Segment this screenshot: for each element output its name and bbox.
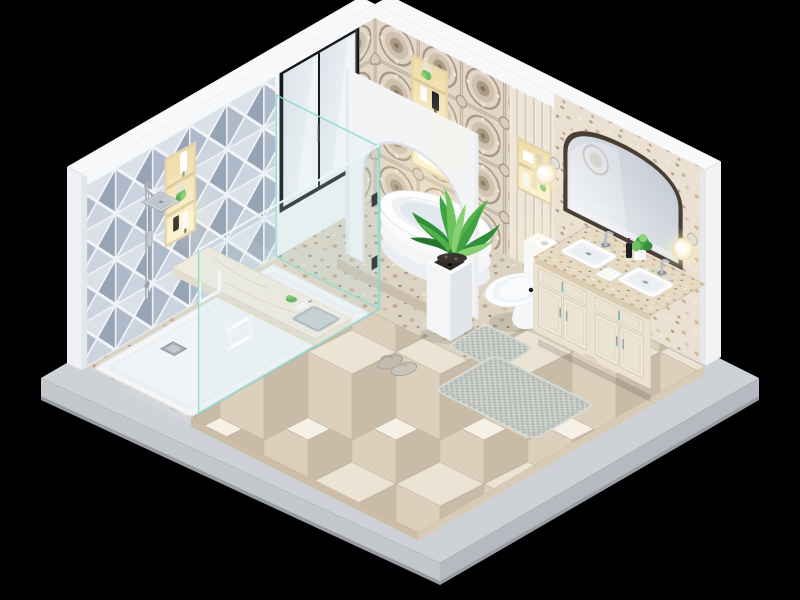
niche-glow: [418, 85, 474, 195]
handheld-shower: [148, 229, 153, 247]
niche-glow: [162, 164, 214, 260]
bathroom-isometric-render: [0, 0, 800, 600]
counter-cup: [634, 252, 639, 260]
render-canvas: [0, 0, 800, 600]
niche-glow: [514, 208, 562, 268]
